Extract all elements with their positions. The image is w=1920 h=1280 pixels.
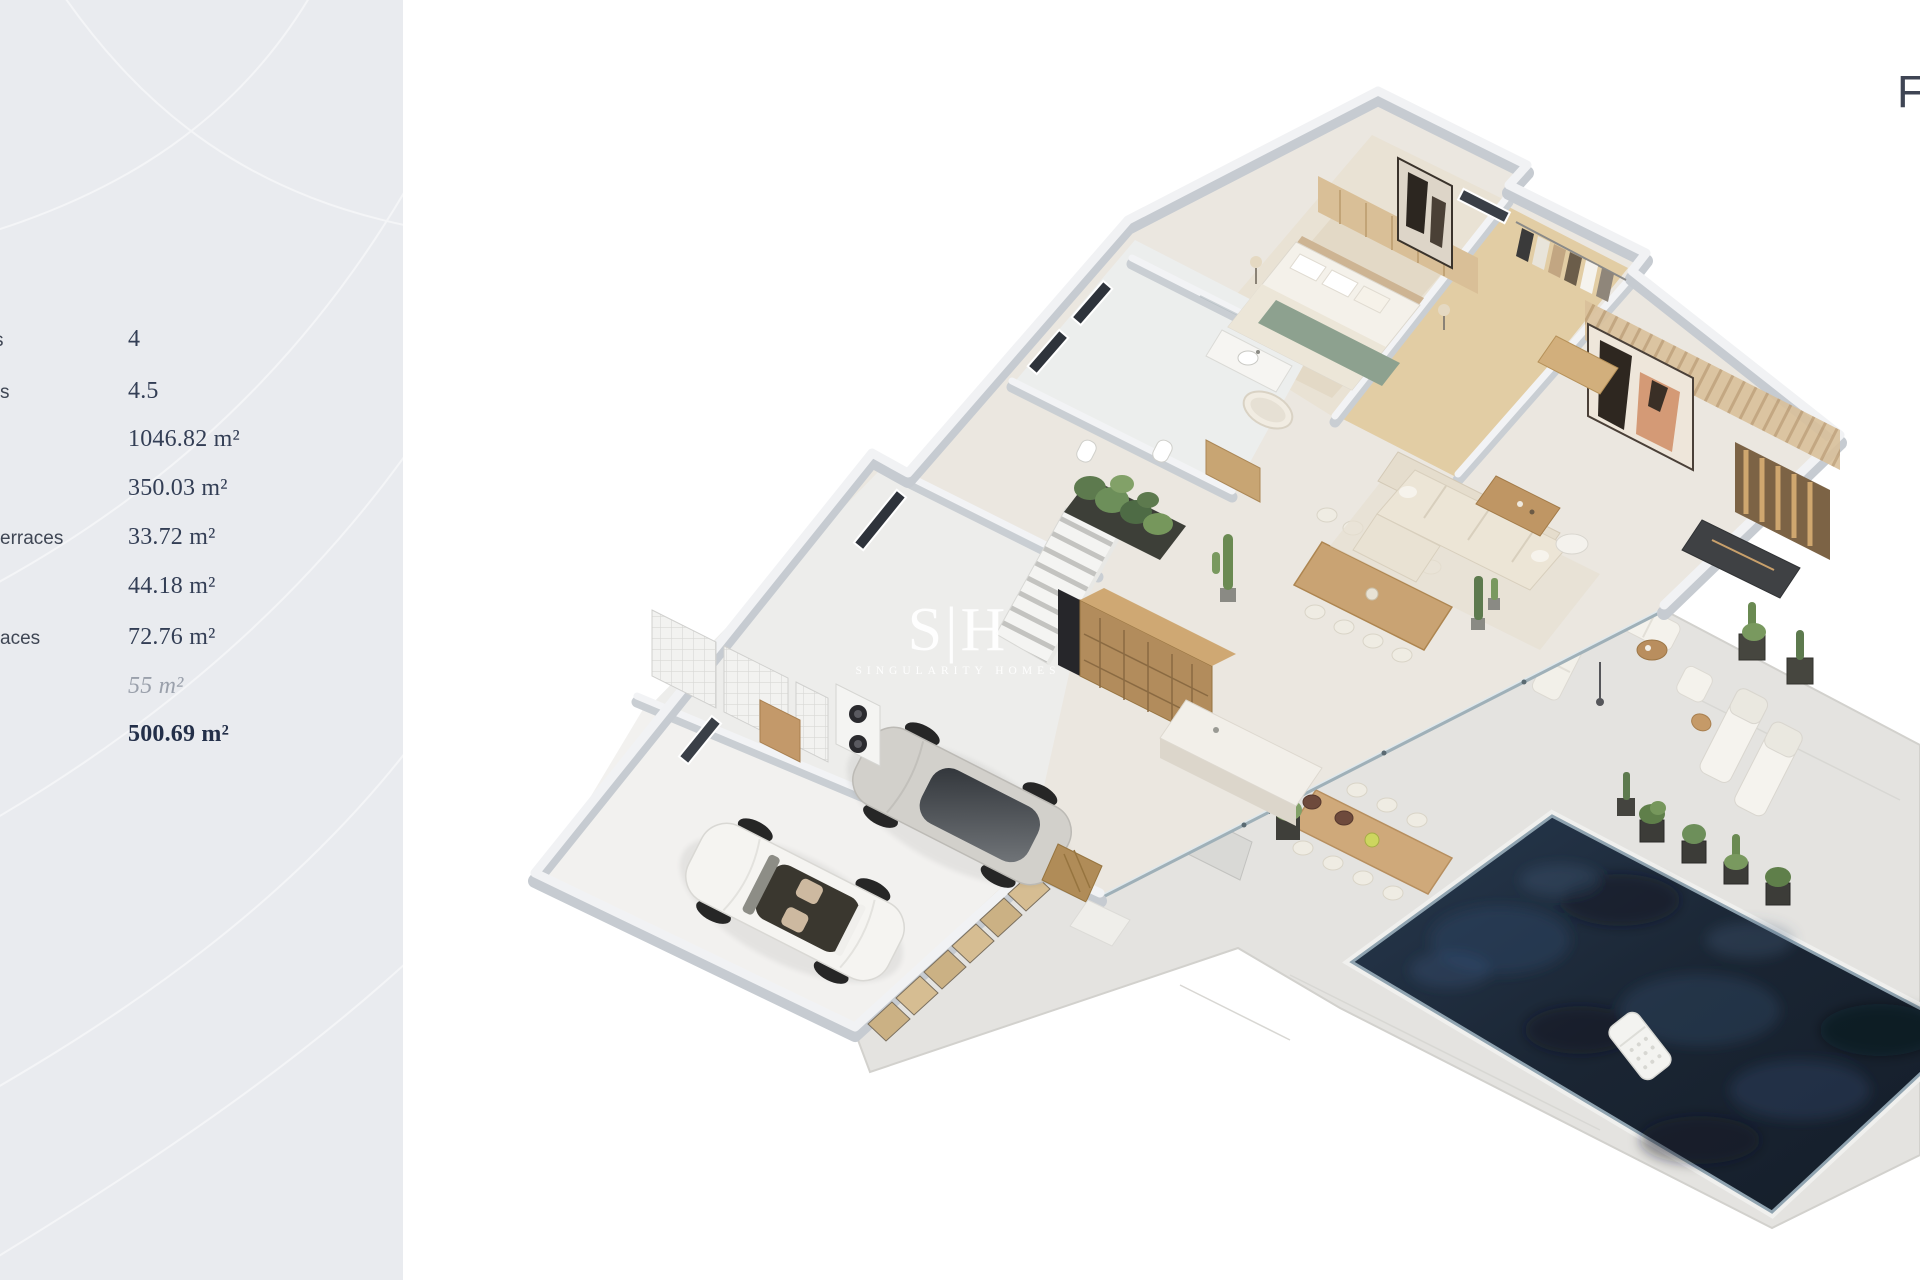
spec-value: 4 bbox=[128, 326, 140, 353]
bar-stool bbox=[1335, 811, 1353, 825]
spec-row-bathrooms: s 4.5 bbox=[0, 378, 403, 412]
spec-row-open-terraces: aces 72.76 m² bbox=[0, 624, 403, 658]
spec-row-bedrooms: s 4 bbox=[0, 326, 403, 360]
spec-value: 1046.82 m² bbox=[128, 426, 240, 453]
floor-label: F bbox=[1897, 66, 1920, 118]
spec-row-optional: 55 m² bbox=[0, 673, 403, 707]
spec-row-plot: 1046.82 m² bbox=[0, 426, 403, 460]
spec-value: 350.03 m² bbox=[128, 475, 228, 502]
spec-label-fragment: s bbox=[0, 330, 4, 352]
bar-stool bbox=[1303, 795, 1321, 809]
specs-panel: s 4 s 4.5 1046.82 m² 350.03 m² erraces 3… bbox=[0, 0, 403, 1280]
spec-value: 500.69 m² bbox=[128, 721, 229, 748]
spec-row-total: 500.69 m² bbox=[0, 721, 403, 755]
spec-label-fragment: erraces bbox=[0, 528, 63, 550]
spec-value: 44.18 m² bbox=[128, 573, 215, 600]
spec-row-terraces: erraces 33.72 m² bbox=[0, 524, 403, 558]
spec-value: 55 m² bbox=[128, 673, 184, 700]
spec-value: 4.5 bbox=[128, 378, 159, 405]
spec-label-fragment: aces bbox=[0, 628, 40, 650]
spec-value: 72.76 m² bbox=[128, 624, 215, 651]
spec-row-built: 350.03 m² bbox=[0, 475, 403, 509]
spec-label-fragment: s bbox=[0, 382, 10, 404]
spec-value: 33.72 m² bbox=[128, 524, 215, 551]
spec-row: 44.18 m² bbox=[0, 573, 403, 607]
